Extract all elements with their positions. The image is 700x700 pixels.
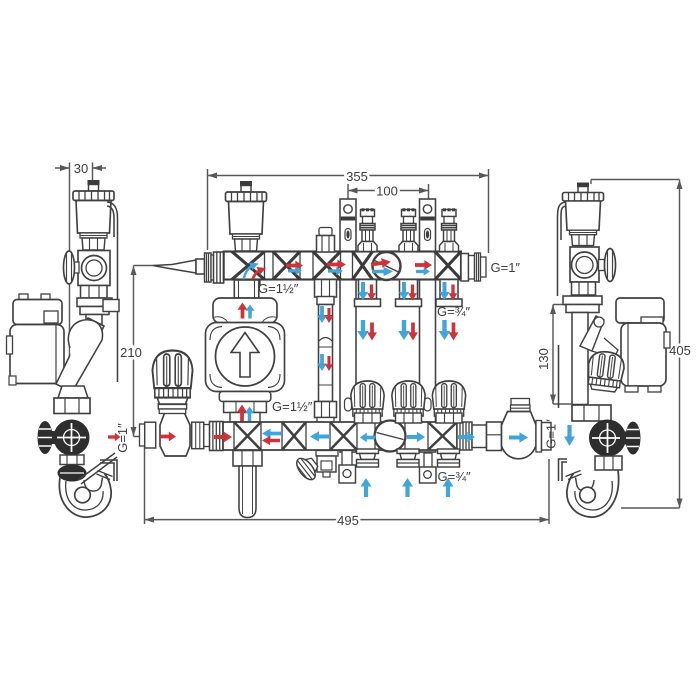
svg-text:G=1″: G=1″ (115, 423, 130, 453)
svg-text:355: 355 (346, 169, 368, 184)
svg-text:G=1½″: G=1½″ (272, 399, 313, 414)
svg-text:G=1″: G=1″ (491, 260, 521, 275)
svg-text:405: 405 (669, 343, 691, 358)
svg-text:30: 30 (74, 161, 88, 176)
svg-text:G=1″: G=1″ (544, 419, 559, 449)
svg-text:G=1½″: G=1½″ (258, 281, 299, 296)
svg-text:100: 100 (376, 184, 398, 199)
svg-text:G=¾″: G=¾″ (438, 469, 472, 484)
svg-text:G=¾″: G=¾″ (437, 304, 471, 319)
svg-text:130: 130 (536, 348, 551, 370)
svg-text:495: 495 (337, 513, 359, 528)
svg-text:210: 210 (120, 345, 142, 360)
